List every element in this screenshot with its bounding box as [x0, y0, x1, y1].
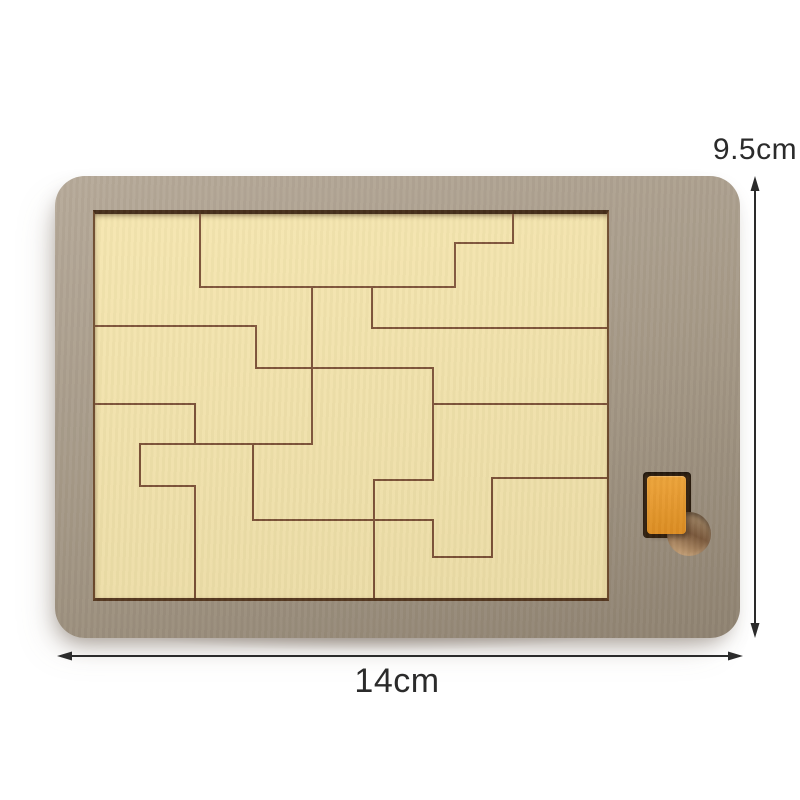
puzzle-board	[55, 176, 740, 638]
height-dimension-arrow	[751, 176, 760, 638]
puzzle-tray	[93, 210, 609, 601]
product-photo-scene: 9.5cm 14cm	[0, 0, 800, 800]
arrow-up-icon	[751, 176, 760, 191]
arrow-down-icon	[751, 623, 760, 638]
puzzle-lines-svg	[95, 214, 607, 598]
height-dimension-label: 9.5cm	[700, 134, 800, 166]
width-dimension-label: 14cm	[342, 664, 452, 700]
orange-puzzle-piece	[647, 476, 686, 534]
